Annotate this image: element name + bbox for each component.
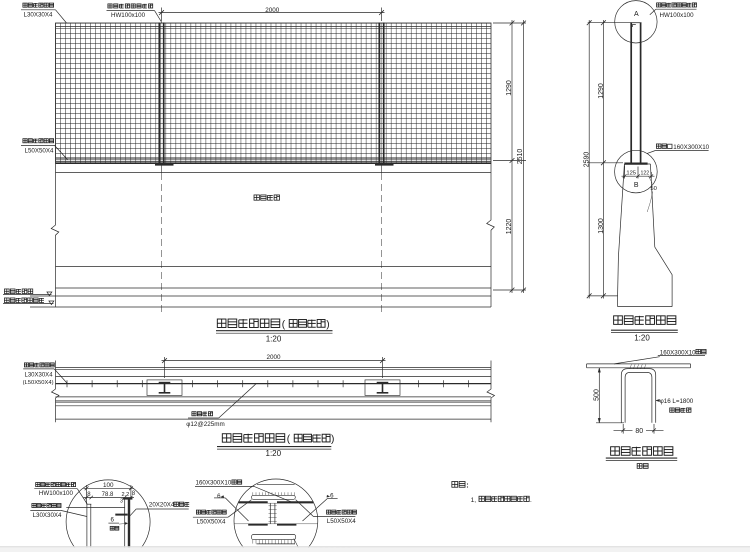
svg-text:80: 80 (635, 428, 643, 435)
svg-text:1:20: 1:20 (266, 449, 282, 458)
svg-text:1:20: 1:20 (634, 333, 650, 342)
svg-text:500: 500 (593, 389, 600, 401)
svg-text:1290: 1290 (506, 80, 513, 96)
svg-text:L30X30X4: L30X30X4 (25, 373, 54, 379)
svg-text:125: 125 (626, 170, 636, 176)
svg-text:φ12@225mm: φ12@225mm (186, 421, 224, 428)
svg-text:A: A (634, 11, 639, 18)
svg-text:20X20X4: 20X20X4 (149, 502, 175, 509)
svg-text:6: 6 (110, 517, 114, 524)
svg-text:1300: 1300 (598, 218, 605, 234)
svg-text:(L50X50X4): (L50X50X4) (23, 380, 54, 386)
svg-text:): ) (326, 319, 329, 330)
svg-text:1:20: 1:20 (266, 334, 282, 343)
svg-text:160X300X10: 160X300X10 (673, 144, 709, 151)
svg-text:HW100x100: HW100x100 (111, 12, 146, 19)
svg-text:L50X50X4: L50X50X4 (327, 518, 356, 525)
svg-text:.: . (530, 497, 532, 504)
svg-text:L50X50X4: L50X50X4 (25, 147, 54, 154)
svg-text:HW100x100: HW100x100 (39, 490, 74, 497)
svg-text:2000: 2000 (266, 354, 281, 361)
svg-text:78.8: 78.8 (102, 492, 114, 498)
svg-text:φ16 L=1800: φ16 L=1800 (660, 398, 694, 405)
svg-text:(: ( (282, 319, 286, 330)
svg-text:2000: 2000 (265, 7, 280, 14)
svg-text:L30X30X4: L30X30X4 (33, 512, 62, 519)
svg-text:1290: 1290 (598, 83, 605, 99)
svg-text:B: B (634, 182, 639, 189)
svg-text:160X300X10: 160X300X10 (196, 480, 232, 487)
svg-text:1220: 1220 (506, 219, 513, 235)
svg-text:): ) (331, 434, 334, 445)
svg-text:6: 6 (217, 493, 221, 500)
svg-text:L30X30X4: L30X30X4 (24, 12, 53, 19)
svg-text::: : (466, 481, 469, 490)
svg-text:L50X50X4: L50X50X4 (197, 519, 226, 526)
svg-text:(: ( (287, 434, 291, 445)
svg-text:2590: 2590 (584, 152, 591, 168)
svg-text:,: , (474, 497, 476, 504)
svg-text:160X300X10: 160X300X10 (660, 349, 696, 356)
svg-text:HW100x100: HW100x100 (660, 12, 695, 19)
svg-text:2.2: 2.2 (122, 492, 130, 498)
svg-text:2510: 2510 (517, 149, 524, 165)
svg-text:3: 3 (120, 499, 123, 505)
svg-text:122: 122 (640, 171, 649, 177)
svg-text:100: 100 (103, 482, 114, 489)
